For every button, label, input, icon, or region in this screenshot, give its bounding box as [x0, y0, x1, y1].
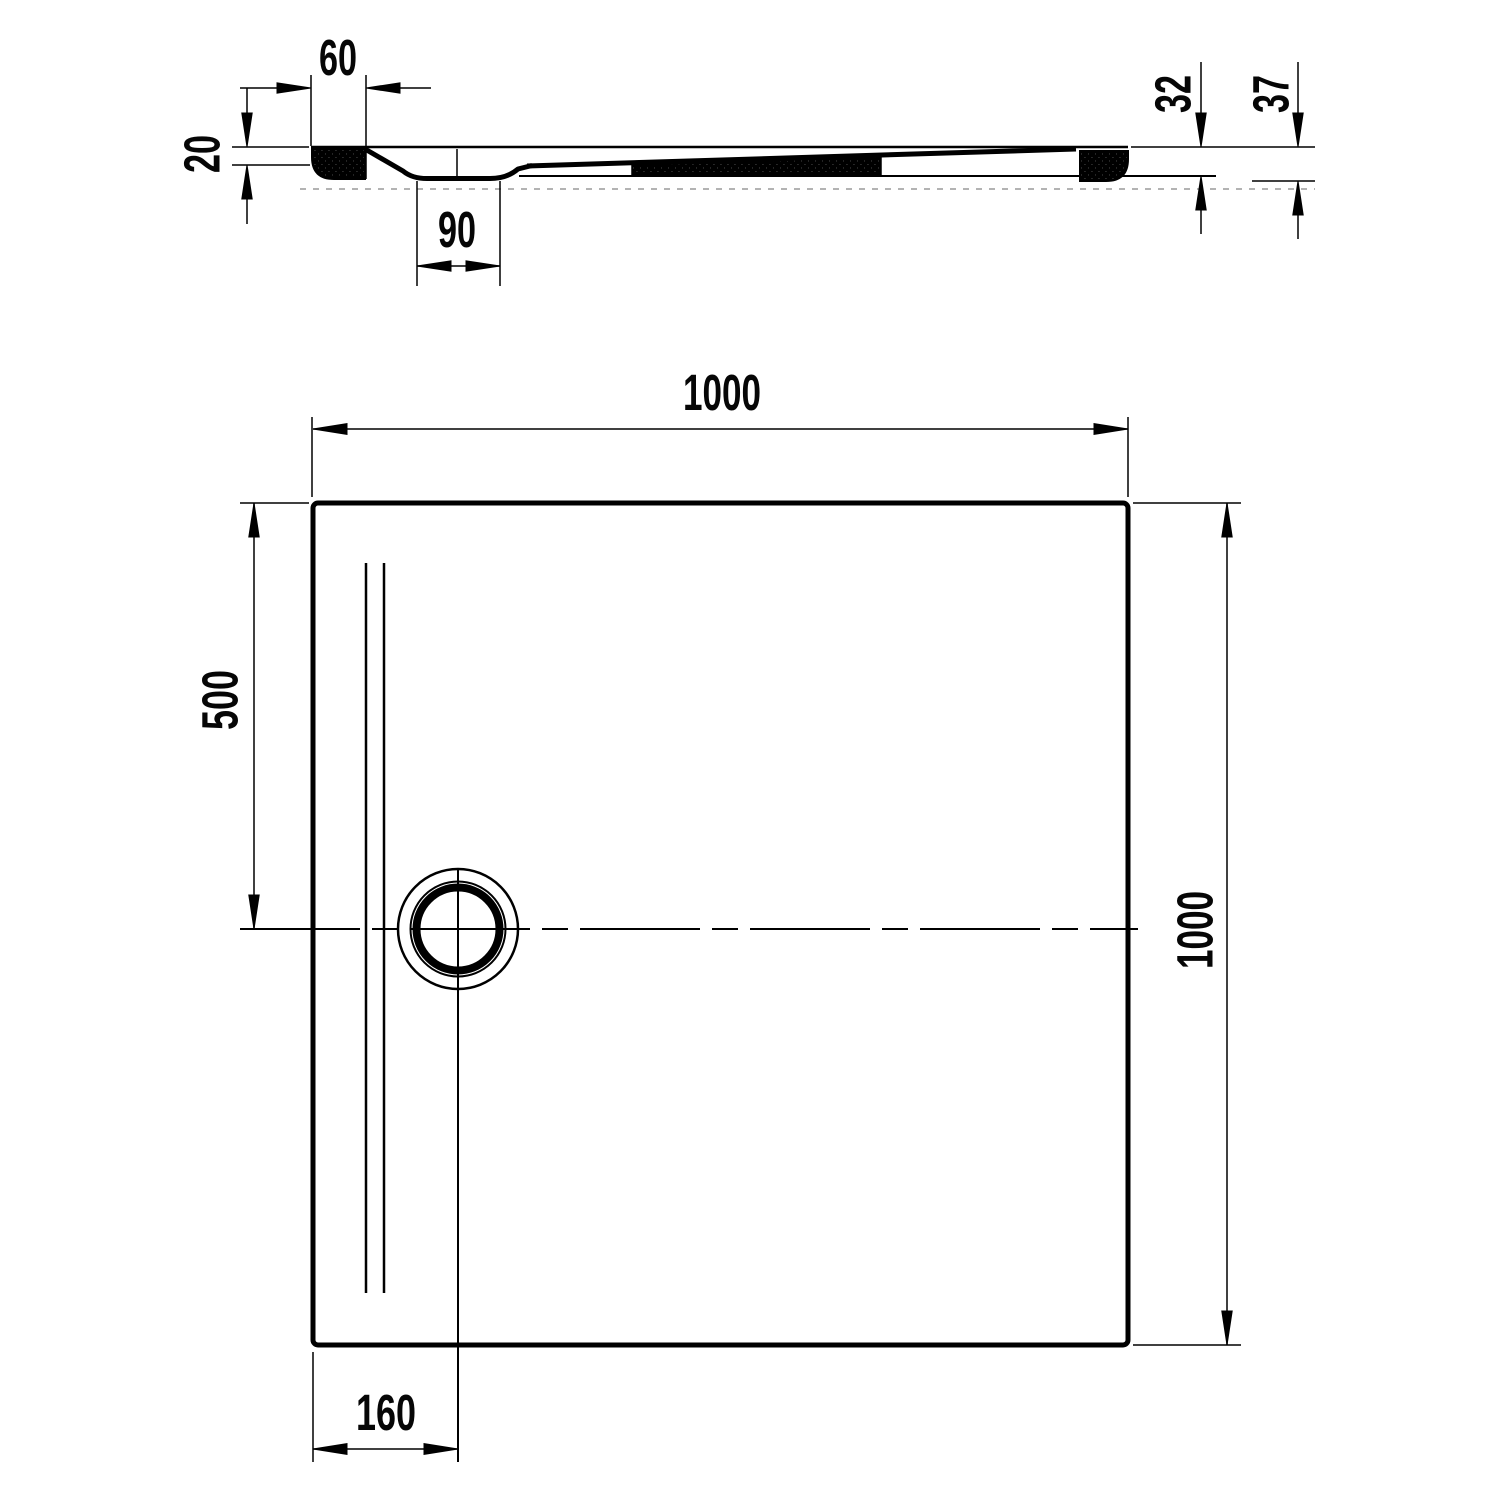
drawing-svg: 60 20 90 32 — [0, 0, 1500, 1500]
section-profile — [300, 147, 1315, 189]
dim-60-arrow-left — [277, 83, 311, 93]
dim-label-width: 1000 — [683, 364, 761, 421]
dim-160-arrow-right — [424, 1444, 458, 1455]
section-view: 60 20 90 32 — [174, 29, 1316, 286]
dim-500-arrow-bottom — [249, 895, 259, 929]
tray-outline — [313, 503, 1128, 1345]
dim-20-arrow-top — [242, 113, 252, 147]
dim-20-arrow-bottom — [242, 165, 252, 199]
dim-label-edge-thickness: 20 — [174, 135, 231, 173]
dim-32-arrow-bottom — [1196, 176, 1206, 210]
technical-drawing-shower-tray: 60 20 90 32 — [0, 0, 1500, 1500]
dim-label-height-total: 37 — [1243, 75, 1300, 113]
dim-label-height-rim: 32 — [1145, 75, 1202, 113]
dim-depth-arrow-bottom — [1222, 1311, 1232, 1345]
dim-90-arrow-left — [417, 261, 451, 271]
dim-160-arrow-left — [313, 1444, 347, 1455]
section-drain-recess — [365, 149, 532, 179]
dim-60-arrow-right — [366, 83, 400, 93]
dim-label-rim-width: 60 — [319, 29, 357, 86]
dim-label-drain-offset-left: 160 — [356, 1384, 416, 1441]
dim-32-arrow-top — [1196, 113, 1206, 147]
dim-500-arrow-top — [249, 503, 259, 537]
dim-label-drain-recess-width: 90 — [438, 201, 476, 258]
dim-90-arrow-right — [466, 261, 500, 271]
section-right-seal-block — [1080, 151, 1128, 181]
dim-width-arrow-right — [1094, 424, 1128, 435]
dim-37-arrow-bottom — [1293, 181, 1303, 215]
plan-outline — [240, 503, 1138, 1462]
dim-37-arrow-top — [1293, 113, 1303, 147]
dim-width-arrow-left — [313, 424, 347, 435]
dim-depth-arrow-top — [1222, 503, 1232, 537]
dim-label-depth: 1000 — [1167, 891, 1224, 969]
plan-view: 1000 500 1000 160 — [192, 364, 1242, 1462]
section-left-seal-block — [312, 147, 365, 179]
dim-label-drain-offset-top: 500 — [192, 670, 249, 730]
